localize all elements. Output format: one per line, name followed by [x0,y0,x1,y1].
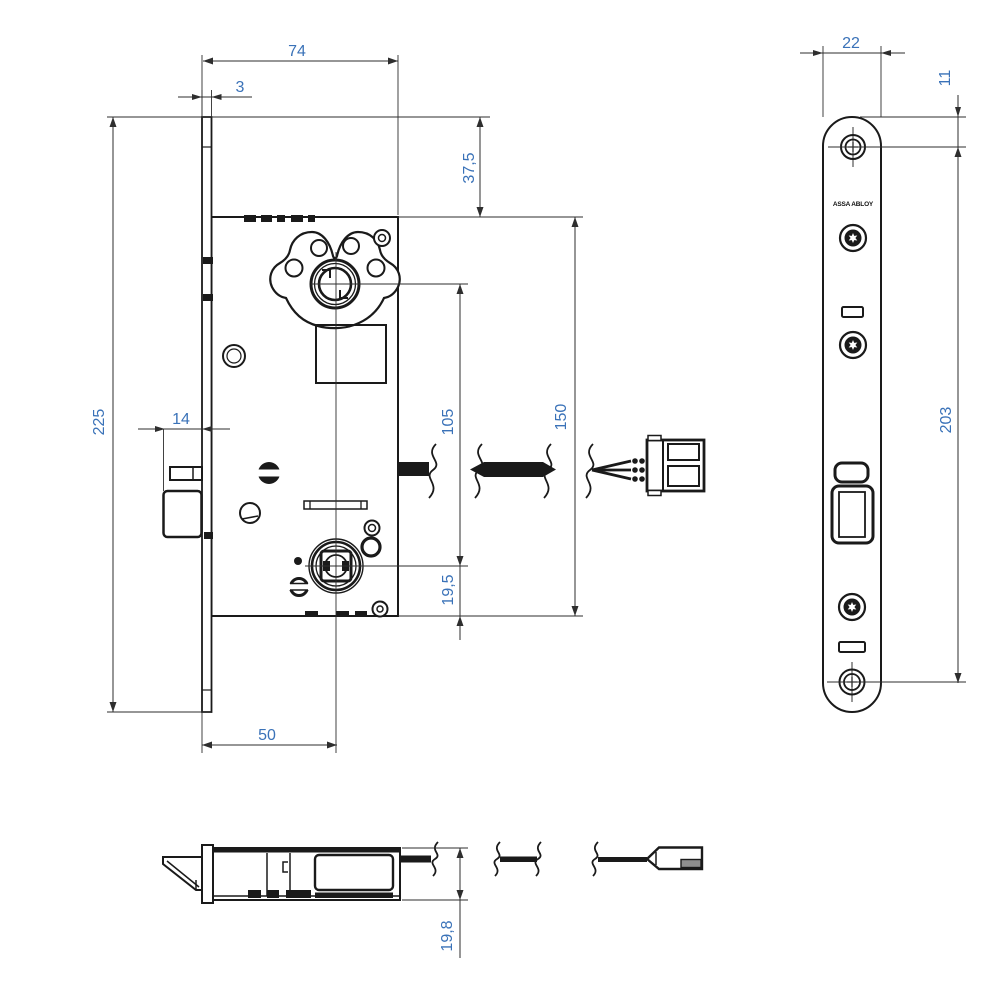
case-hole-small [240,503,260,523]
faceplate-weld-mark [203,257,213,264]
tab-mark [248,890,261,898]
tab-mark [286,890,311,898]
torx-screw-3 [839,594,865,620]
faceplate-front-strip [202,117,212,712]
dim-cylinder-to-follower: 105 [440,409,457,436]
dim-follower-to-bottom: 19,5 [440,574,457,605]
break-symbol [494,842,500,876]
case-screw-bottom [373,602,388,617]
dim-latch-protrusion: 14 [172,411,190,428]
adjuster-screw [365,521,380,536]
side-view-faceplate: ASSA ABLOY [823,117,881,712]
dim-faceplate-thickness: 3 [236,79,245,96]
rosette-hole [343,238,359,254]
case-hole [223,345,245,367]
dim-top-to-case: 37,5 [461,152,478,183]
tab-mark [267,890,279,898]
cover-plate [315,855,393,890]
break-symbol [592,842,598,876]
dim-backset: 50 [258,727,276,744]
rosette-hole [311,240,327,256]
rosette-hole [368,260,385,277]
rosette-hole [286,260,303,277]
dim-faceplate-width: 22 [842,35,860,52]
aux-bolt-opening [835,463,868,482]
cable-front [398,436,704,499]
top-view-dimensions: 19,8 [402,848,468,958]
cable-connector-front [647,436,704,496]
faceplate-weld-mark [204,532,213,539]
dim-case-height: 150 [553,404,570,431]
latch-top-view [163,857,202,890]
case-screw [374,230,390,246]
dim-screw-centers: 203 [938,407,955,434]
cable-top-view [400,842,702,876]
faceplate-top-view [202,845,213,903]
main-latch-bolt [164,491,202,537]
dim-faceplate-length: 225 [91,409,108,436]
brand-logo: ASSA ABLOY [833,201,874,208]
cable-connector-top [647,848,702,870]
front-view [164,117,705,753]
dim-case-thickness: 19,8 [439,920,456,951]
slot-bar [304,501,367,509]
drawing-page: 74 3 37,5 150 105 19,5 14 [0,0,1000,985]
dim-top-to-screw: 11 [937,70,954,87]
pin-dot [294,557,302,565]
faceplate-weld-mark [203,294,213,301]
aux-latch-bolt [170,467,202,480]
case-top-edge [213,848,400,853]
faceplate-slot-lower [839,642,865,652]
wire-crimps [632,458,645,482]
top-view [163,842,702,903]
torx-screw-1 [840,225,866,251]
cover-plate-edge [315,893,393,899]
faceplate-slot-upper [842,307,863,317]
torx-screw-2 [840,332,866,358]
dim-case-depth: 74 [288,43,306,60]
technical-drawing-canvas: 74 3 37,5 150 105 19,5 14 [0,0,1000,985]
break-symbol [429,444,436,498]
break-symbol [432,842,438,876]
